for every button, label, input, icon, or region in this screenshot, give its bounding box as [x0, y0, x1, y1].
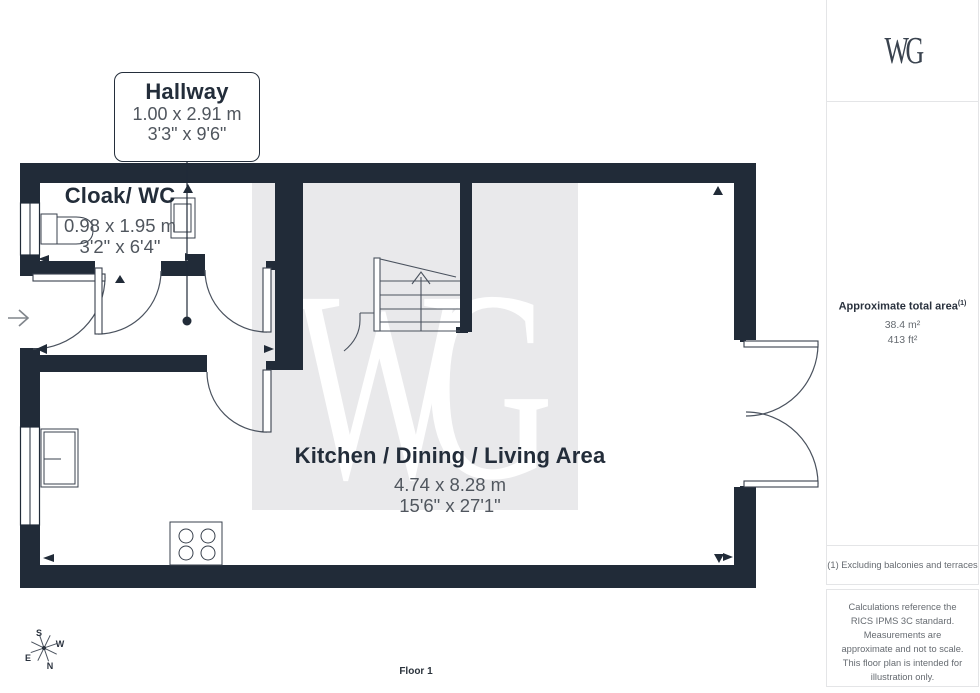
wall-right-upper — [734, 183, 756, 340]
stove — [170, 522, 222, 565]
front-door-leaf — [33, 274, 105, 281]
cupboard-door-leaf — [263, 268, 271, 332]
hallway-leader-dot — [183, 317, 192, 326]
room-marker-down — [714, 554, 724, 563]
area-metric: 38.4 m² — [885, 319, 921, 332]
room-dims-kitchen-imperial: 15'6" x 27'1" — [280, 495, 620, 516]
wall-right-lower — [734, 487, 756, 565]
room-dims-kitchen-metric: 4.74 x 8.28 m — [280, 474, 620, 495]
stove-burner — [201, 546, 215, 560]
wall-hall-south — [20, 355, 207, 372]
cloak-wc-label: Cloak/ WC 0.98 x 1.95 m 3'2" x 6'4" — [30, 184, 210, 257]
compass-label-e: E — [25, 653, 31, 663]
entrance-arrow-icon — [8, 310, 28, 326]
room-marker-left — [43, 554, 54, 562]
wall-top — [20, 163, 756, 183]
wall-stairs — [460, 183, 472, 332]
room-dims-cloak-metric: 0.98 x 1.95 m — [30, 215, 210, 236]
cloak-door-arc — [98, 271, 161, 334]
wg-logo: WG — [884, 29, 920, 73]
compass-label-w: W — [56, 639, 65, 649]
area-label-text: Approximate total area — [839, 300, 958, 312]
compass-center — [42, 646, 46, 650]
room-name-kitchen: Kitchen / Dining / Living Area — [280, 444, 620, 468]
room-dims-cloak-imperial: 3'2" x 6'4" — [30, 236, 210, 257]
disclaimer-text: Calculations reference the RICS IPMS 3C … — [839, 601, 966, 685]
stove-burner — [201, 529, 215, 543]
room-dims-hallway-imperial: 3'3" x 9'6" — [115, 124, 259, 144]
stairs-stringer — [374, 258, 380, 331]
kitchen-dining-living-label: Kitchen / Dining / Living Area 4.74 x 8.… — [280, 444, 620, 516]
wall-bottom — [20, 565, 756, 588]
wall-cloak-south-right — [161, 261, 205, 276]
hinge-nub-kitchen — [266, 361, 275, 370]
wall-interior-east — [275, 183, 303, 370]
kitchen-door-leaf — [263, 370, 271, 432]
area-label: Approximate total area(1) — [839, 300, 967, 313]
footnote-text: (1) Excluding balconies and terraces — [827, 560, 977, 570]
wall-left-4 — [20, 525, 40, 588]
kitchen-sink-inner — [44, 432, 75, 484]
stove-burner — [179, 529, 193, 543]
room-name-hallway: Hallway — [115, 80, 259, 104]
french-door-top-leaf — [744, 341, 818, 347]
floorplan-page: WG — [0, 0, 980, 693]
french-door-bottom-arc — [746, 412, 818, 484]
room-marker-up — [713, 186, 723, 195]
compass-rose: S W E N — [25, 628, 65, 671]
compass-label-n: N — [47, 661, 54, 671]
sidebar-logo-box: WG — [826, 0, 979, 102]
cloak-door-leaf — [95, 268, 102, 334]
area-imperial: 413 ft² — [888, 334, 918, 347]
floor-label: Floor 1 — [386, 666, 446, 677]
sidebar-footnote-box: (1) Excluding balconies and terraces — [826, 545, 979, 585]
room-name-cloak: Cloak/ WC — [30, 184, 210, 208]
french-door-top-arc — [746, 344, 818, 416]
wall-stairs-endcap — [456, 327, 468, 333]
front-door-marker — [115, 275, 125, 283]
stove-burner — [179, 546, 193, 560]
sidebar-area-box: Approximate total area(1) 38.4 m² 413 ft… — [826, 101, 979, 546]
front-door-arc — [33, 277, 105, 349]
info-sidebar: WG Approximate total area(1) 38.4 m² 413… — [826, 0, 980, 693]
area-footnote-marker: (1) — [958, 300, 967, 307]
compass-label-s: S — [36, 628, 42, 638]
room-dims-hallway-metric: 1.00 x 2.91 m — [115, 104, 259, 124]
french-door-bottom-leaf — [744, 481, 818, 487]
sidebar-disclaimer-box: Calculations reference the RICS IPMS 3C … — [826, 589, 979, 687]
hallway-label-box: Hallway 1.00 x 2.91 m 3'3" x 9'6" — [114, 72, 260, 162]
room-marker-right — [723, 553, 733, 561]
